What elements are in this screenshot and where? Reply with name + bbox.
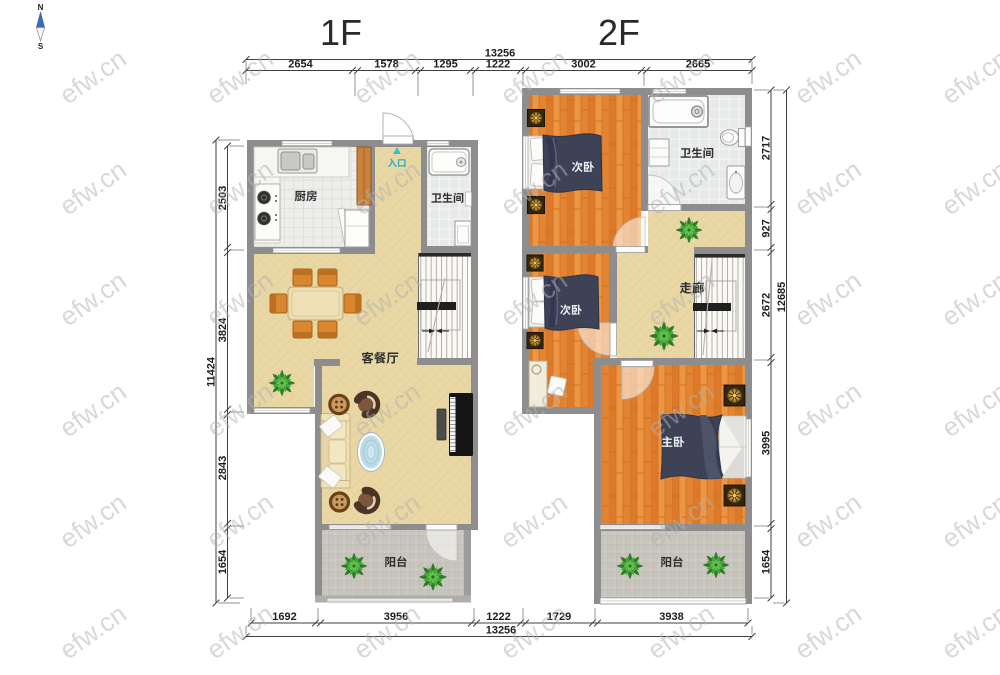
svg-text:12685: 12685 <box>776 282 788 313</box>
svg-text:S: S <box>38 42 44 51</box>
svg-text:1F: 1F <box>320 12 362 53</box>
svg-text:3995: 3995 <box>761 431 773 455</box>
svg-text:927: 927 <box>761 219 773 237</box>
svg-text:11424: 11424 <box>206 356 218 387</box>
svg-text:1222: 1222 <box>486 611 510 623</box>
svg-text:N: N <box>38 3 44 12</box>
svg-text:3002: 3002 <box>571 59 595 71</box>
svg-text:2717: 2717 <box>761 136 773 160</box>
svg-text:2843: 2843 <box>217 456 229 480</box>
svg-text:1295: 1295 <box>433 59 457 71</box>
svg-text:1654: 1654 <box>761 549 773 574</box>
svg-text:1222: 1222 <box>486 59 510 71</box>
svg-text:2F: 2F <box>598 12 640 53</box>
svg-text:2654: 2654 <box>288 59 313 71</box>
svg-text:2672: 2672 <box>761 293 773 317</box>
